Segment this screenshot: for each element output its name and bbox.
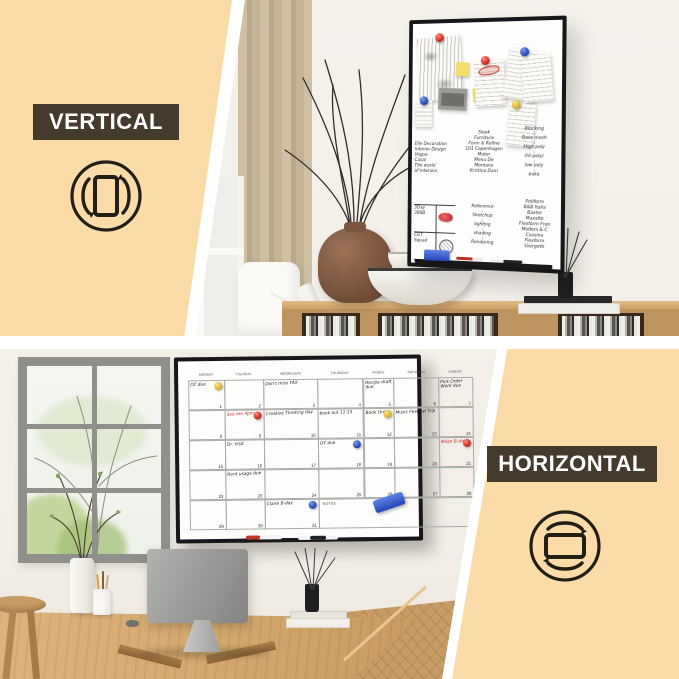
calendar-cell: Don't miss TAX3 bbox=[264, 379, 319, 410]
date-number: 20 bbox=[432, 462, 437, 467]
calendar-day-header: TUESDAY bbox=[224, 367, 263, 379]
calendar-entry: Music Festival Trip bbox=[396, 410, 438, 419]
date-number: 13 bbox=[432, 432, 437, 437]
calendar-entry: Don't miss TAX bbox=[266, 382, 316, 391]
horizontal-label-text: HORIZONTAL bbox=[498, 451, 646, 477]
date-number: 23 bbox=[258, 494, 263, 499]
book bbox=[286, 618, 350, 628]
pinned-note-paper bbox=[520, 54, 554, 104]
calendar-entry: Creative Thinking day bbox=[266, 412, 316, 421]
vase-branches bbox=[40, 468, 130, 568]
window-mullion bbox=[27, 424, 161, 429]
notes-workflow: Reference↓Sketchup↓lighting↓shading↓Rend… bbox=[458, 203, 507, 288]
date-number: 11 bbox=[357, 433, 362, 438]
calendar-cell: 30 bbox=[226, 499, 266, 530]
section-divider bbox=[0, 336, 679, 349]
whiteboard-calendar: MONDAYTUESDAYWEDNESDAYTHURSDAYFRIDAYSATU… bbox=[174, 354, 423, 543]
calendar-cell: OT due18 bbox=[318, 438, 365, 469]
calendar-cell: Creative Thinking day10 bbox=[264, 409, 319, 440]
handwritten-line: bake bbox=[509, 171, 559, 177]
day-header-text: MONDAY bbox=[199, 372, 214, 376]
day-header-text: WEDNESDAY bbox=[280, 371, 302, 375]
books bbox=[382, 316, 494, 338]
date-number: 12 bbox=[387, 432, 392, 437]
marker-black-cap bbox=[310, 536, 326, 540]
window-mullion bbox=[92, 366, 97, 554]
magnet-yellow bbox=[214, 382, 222, 390]
date-number: 22 bbox=[218, 494, 223, 499]
vertical-label: VERTICAL bbox=[33, 104, 179, 140]
horizontal-label: HORIZONTAL bbox=[487, 446, 657, 482]
calendar-entry: book out 11-15 bbox=[320, 411, 363, 420]
handwritten-line: of interiors bbox=[415, 168, 460, 174]
calendar-entry-text: book out 11-15 bbox=[320, 409, 363, 415]
date-number: 3 bbox=[313, 403, 316, 408]
shelf-cubby bbox=[558, 313, 644, 338]
vertical-label-text: VERTICAL bbox=[49, 109, 163, 135]
grid-text: 3Day 300B bbox=[414, 205, 436, 216]
books bbox=[562, 316, 640, 338]
date-number: 16 bbox=[257, 464, 262, 469]
calendar-entry-text: Don't miss TAX bbox=[266, 380, 316, 386]
book bbox=[518, 303, 620, 314]
calendar-entry-text: Music Festival Trip bbox=[396, 409, 438, 415]
magnet-blue bbox=[420, 96, 428, 105]
grid-cell-text: 3Day 300B bbox=[414, 205, 437, 232]
magnet-red bbox=[253, 411, 261, 419]
calendar-cell: 20 bbox=[394, 437, 440, 468]
handwritten-line: Rendering bbox=[458, 239, 506, 246]
pinned-note-paper bbox=[474, 59, 506, 107]
notes-magazines: Elle DecorationInterior DesignVogueCasal… bbox=[414, 141, 460, 207]
date-number: 28 bbox=[467, 491, 472, 496]
product-collage: Elle DecorationInterior DesignVogueCasal… bbox=[0, 0, 679, 679]
day-header-text: TUESDAY bbox=[236, 372, 252, 376]
calendar-entry-text: Pick Order Work due bbox=[440, 379, 472, 389]
calendar-cell: 22 bbox=[189, 470, 226, 501]
calendar-cell: 29 bbox=[189, 500, 226, 531]
date-number: 1 bbox=[220, 404, 223, 409]
calendar-cell: 6 bbox=[394, 377, 440, 408]
calendar-cell: 25 bbox=[318, 468, 365, 499]
magnet-blue bbox=[308, 501, 316, 509]
photo-dark bbox=[441, 93, 465, 107]
calendar-cell: 15 bbox=[189, 440, 226, 471]
calendar-cell: Music Festival Trip13 bbox=[394, 407, 440, 438]
marker-black bbox=[298, 536, 338, 540]
red-sketch bbox=[478, 64, 500, 77]
marker-red bbox=[246, 535, 282, 539]
calendar-cell: 19 bbox=[364, 438, 395, 469]
calendar-cell: Pick Order Work due7 bbox=[438, 377, 473, 408]
notes-label: NOTES bbox=[323, 501, 336, 505]
date-number: 25 bbox=[357, 493, 362, 498]
shelf-cubby bbox=[378, 313, 498, 338]
calendar-cell: 8 bbox=[188, 410, 225, 441]
mouse bbox=[126, 620, 139, 627]
date-number: 7 bbox=[468, 401, 471, 406]
calendar-cell: Recipe draft due5 bbox=[363, 378, 394, 409]
calendar-cell: 17 bbox=[264, 439, 319, 470]
date-number: 8 bbox=[220, 434, 223, 439]
pinned-photo-scrap bbox=[438, 88, 468, 111]
grid-cell-sketch bbox=[437, 206, 456, 233]
date-number: 31 bbox=[312, 523, 317, 528]
calendar-day-header: FRIDAY bbox=[363, 366, 394, 378]
magnet-yellow bbox=[512, 100, 521, 109]
white-vase bbox=[70, 558, 94, 613]
calendar-cell: 4 bbox=[317, 378, 364, 409]
handwritten-line: Kristina Dam bbox=[461, 168, 508, 174]
calendar-entry-text: Rent usage due bbox=[227, 471, 263, 477]
date-number: 15 bbox=[218, 464, 223, 469]
landscape-rotate-icon bbox=[526, 507, 604, 585]
calendar-cell: Claire B-day31 bbox=[265, 499, 320, 530]
calendar-day-header: THURSDAY bbox=[317, 366, 363, 379]
vase-neck bbox=[344, 222, 366, 232]
calendar-entry-text: Dr. Visit bbox=[227, 441, 263, 447]
grid-text: CGT Squad bbox=[414, 232, 436, 244]
pencil bbox=[102, 571, 104, 591]
whiteboard-eraser bbox=[424, 249, 450, 261]
calendar-entry: Dr. Visit bbox=[227, 442, 263, 451]
calendar-cell: 24 bbox=[265, 469, 320, 500]
calendar-day-header: SUNDAY bbox=[438, 365, 473, 377]
calendar-entry: Rent usage due bbox=[227, 472, 263, 481]
date-number: 21 bbox=[466, 461, 471, 466]
pencil-cup bbox=[93, 589, 111, 615]
calendar-cell: See me 4pm9 bbox=[225, 409, 265, 440]
date-number: 18 bbox=[357, 463, 362, 468]
window-mullion bbox=[27, 488, 161, 493]
date-number: 6 bbox=[434, 402, 437, 407]
calendar-cell: 2 bbox=[224, 379, 264, 410]
date-number: 9 bbox=[259, 434, 262, 439]
date-number: 27 bbox=[432, 492, 437, 497]
calendar-entry: Recipe draft due bbox=[365, 381, 393, 398]
monitor bbox=[147, 549, 248, 623]
calendar-day-header: WEDNESDAY bbox=[264, 367, 318, 380]
calendar-cell: Book Order12 bbox=[363, 408, 394, 439]
marker-red-cap bbox=[246, 535, 260, 539]
diffuser-reeds bbox=[285, 548, 340, 590]
calendar-day-header: SATURDAY bbox=[394, 365, 439, 378]
portrait-rotate-icon bbox=[67, 157, 145, 235]
calendar-cell: 14 bbox=[439, 407, 474, 438]
calendar-entry-text: Creative Thinking day bbox=[266, 410, 316, 416]
date-number: 30 bbox=[258, 524, 263, 529]
date-number: 2 bbox=[259, 404, 262, 409]
day-header-text: SATURDAY bbox=[407, 370, 425, 374]
handwritten-line: Giorgetti bbox=[509, 243, 561, 251]
day-header-text: FRIDAY bbox=[372, 370, 384, 374]
whiteboard-vertical: Elle DecorationInterior DesignVogueCasal… bbox=[407, 16, 566, 274]
calendar-cell: OT due1 bbox=[188, 380, 225, 411]
magnet-yellow bbox=[383, 410, 391, 418]
date-number: 4 bbox=[358, 403, 361, 408]
calendar-entry: Pick Order Work due bbox=[440, 380, 472, 397]
date-number: 14 bbox=[466, 431, 471, 436]
calendar-entry-text: Recipe draft due bbox=[365, 380, 393, 389]
calendar-day-header: MONDAY bbox=[188, 368, 224, 380]
notes-furniture-brands-it: PoliformB&B ItaliaBaxterMaxaltoFlexform … bbox=[508, 199, 561, 302]
day-header-text: THURSDAY bbox=[331, 371, 349, 375]
calendar-cell: book out 11-1511 bbox=[318, 408, 365, 439]
magnet-red bbox=[463, 439, 471, 447]
red-brain-sketch bbox=[439, 213, 453, 222]
date-number: 19 bbox=[387, 462, 392, 467]
date-number: 29 bbox=[219, 524, 224, 529]
sticky-note bbox=[455, 62, 469, 76]
calendar-cell: Milan B-day21 bbox=[439, 437, 474, 468]
date-number: 10 bbox=[310, 433, 315, 438]
books bbox=[306, 316, 356, 338]
day-header-text: SUNDAY bbox=[449, 369, 463, 373]
shelf-cubby bbox=[302, 313, 360, 338]
date-number: 17 bbox=[311, 463, 316, 468]
date-number: 24 bbox=[311, 493, 316, 498]
date-number: 5 bbox=[389, 402, 392, 407]
calendar-cell: Dr. Visit16 bbox=[225, 439, 265, 470]
calendar-cell: Rent usage due23 bbox=[225, 469, 265, 500]
calendar-cell: 28 bbox=[439, 467, 474, 498]
